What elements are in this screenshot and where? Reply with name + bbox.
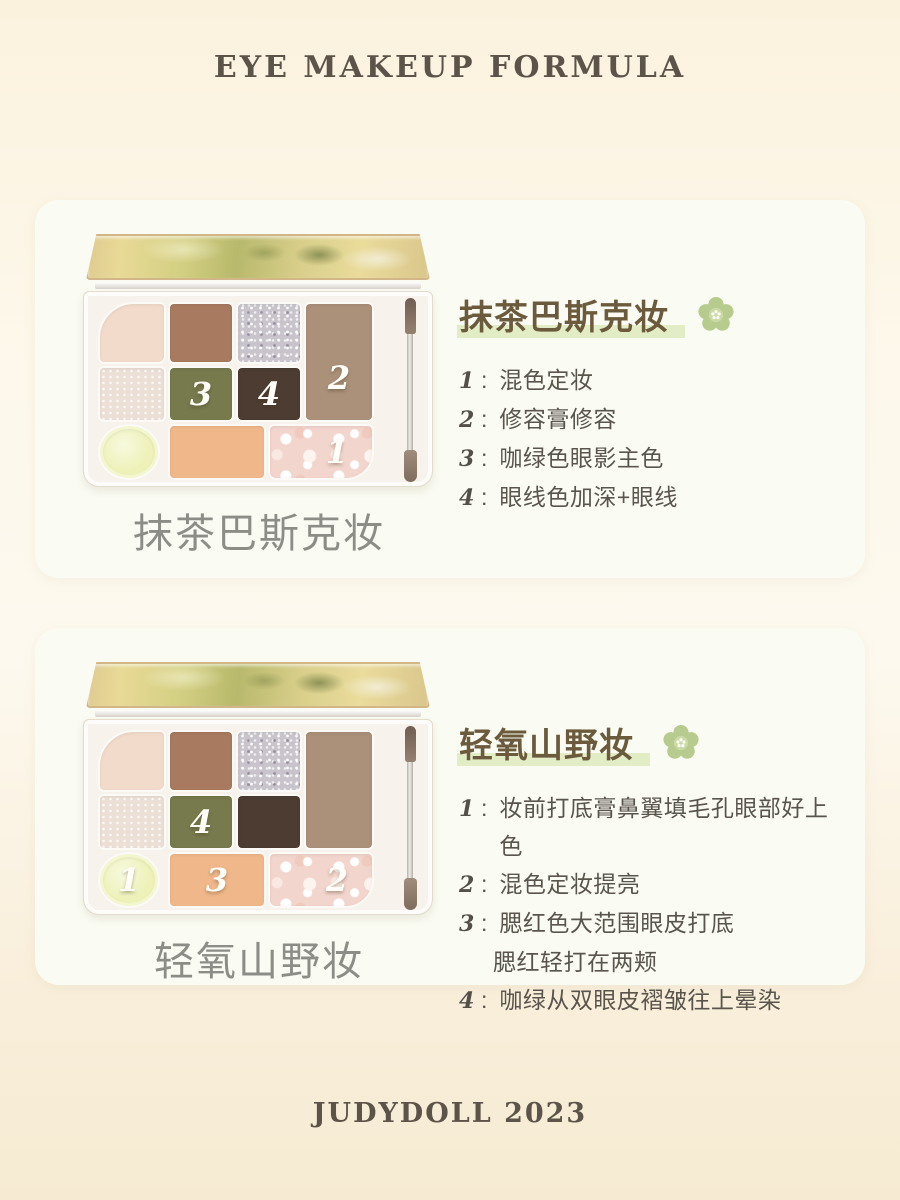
brand-footer: JUDYDOLL 2023 xyxy=(0,1098,900,1129)
pan-pink-marble: 2 xyxy=(270,854,372,906)
dual-ended-brush xyxy=(402,726,418,910)
step-colon: : xyxy=(481,904,487,942)
step-colon: : xyxy=(481,439,487,477)
card-heading-row: 轻氧山野妆 xyxy=(459,718,841,767)
pan-champagne-shimmer xyxy=(100,368,164,420)
brush-handle xyxy=(407,762,413,878)
palette-body: 4 1 3 2 xyxy=(83,719,433,915)
pan-number: 3 xyxy=(206,864,228,896)
step-colon: : xyxy=(481,865,487,903)
palette-caption: 抹茶巴斯克妆 xyxy=(83,501,435,559)
palette-hinge xyxy=(95,710,421,717)
step-number: 4 xyxy=(459,982,481,1020)
pan-taupe-contour xyxy=(306,732,372,848)
step-item: 2:混色定妆提亮 xyxy=(459,865,841,904)
pan-dark-brown-liner: 4 xyxy=(238,368,300,420)
palette-caption: 轻氧山野妆 xyxy=(83,929,435,987)
pan-number: 4 xyxy=(190,806,212,838)
step-text: 混色定妆提亮 xyxy=(499,865,640,903)
step-item: 1:妆前打底膏鼻翼填毛孔眼部好上色 xyxy=(459,789,841,865)
brush-bristle-tip xyxy=(405,298,416,334)
step-item: 3:咖绿色眼影主色 xyxy=(459,439,841,478)
pan-number: 2 xyxy=(326,864,348,896)
step-text: 眼线色加深+眼线 xyxy=(499,478,677,516)
card-heading: 抹茶巴斯克妆 xyxy=(459,299,669,337)
eyeshadow-palette-photo: 4 1 3 2 xyxy=(83,662,433,915)
eyeshadow-palette-photo: 2 3 4 1 xyxy=(83,234,433,487)
pan-number: 4 xyxy=(258,378,280,410)
palette-lid-artwork xyxy=(86,234,430,280)
step-number: 3 xyxy=(459,440,481,478)
pan-light-pink xyxy=(100,732,164,790)
page-title: EYE MAKEUP FORMULA xyxy=(0,0,900,85)
brush-sponge-tip xyxy=(404,878,417,910)
pan-number: 1 xyxy=(118,864,140,896)
pan-silver-glitter xyxy=(238,732,300,790)
brush-sponge-tip xyxy=(404,450,417,482)
pan-warm-brown xyxy=(170,304,232,362)
pan-dark-brown-liner xyxy=(238,796,300,848)
step-text: 混色定妆 xyxy=(499,361,593,399)
step-text: 咖绿色眼影主色 xyxy=(499,439,664,477)
pan-taupe-contour: 2 xyxy=(306,304,372,420)
step-text-continued: 腮红轻打在两颊 xyxy=(493,943,841,981)
palette-hinge xyxy=(95,282,421,289)
step-colon: : xyxy=(481,981,487,1019)
step-text: 妆前打底膏鼻翼填毛孔眼部好上色 xyxy=(499,789,841,865)
makeup-card-mountain: 4 1 3 2 轻氧山野妆 轻氧山野妆 xyxy=(35,628,865,985)
pan-warm-brown xyxy=(170,732,232,790)
formula-column: 抹茶巴斯克妆 1:混色定妆 2:修容膏修容 xyxy=(435,234,841,559)
step-number: 1 xyxy=(459,362,481,400)
makeup-card-matcha: 2 3 4 1 抹茶巴斯克妆 xyxy=(35,200,865,578)
step-text: 修容膏修容 xyxy=(499,400,617,438)
palette-column: 4 1 3 2 轻氧山野妆 xyxy=(83,662,435,1020)
pan-champagne-shimmer xyxy=(100,796,164,848)
pan-silver-glitter xyxy=(238,304,300,362)
step-number: 4 xyxy=(459,479,481,517)
formula-steps: 1:混色定妆 2:修容膏修容 3:咖绿色眼影主色 4:眼线色加深+眼线 xyxy=(459,361,841,517)
card-heading-row: 抹茶巴斯克妆 xyxy=(459,290,841,339)
step-number: 2 xyxy=(459,401,481,439)
step-text: 腮红色大范围眼皮打底 xyxy=(499,904,734,942)
dual-ended-brush xyxy=(402,298,418,482)
pan-pink-marble: 1 xyxy=(270,426,372,478)
palette-body: 2 3 4 1 xyxy=(83,291,433,487)
brush-handle xyxy=(407,334,413,450)
palette-lid-artwork xyxy=(86,662,430,708)
formula-column: 轻氧山野妆 1:妆前打底膏鼻翼填毛孔眼部好上色 2:混色定妆提 xyxy=(435,662,841,1020)
pan-peach-blush: 3 xyxy=(170,854,264,906)
step-number: 2 xyxy=(459,866,481,904)
step-item: 2:修容膏修容 xyxy=(459,400,841,439)
formula-steps: 1:妆前打底膏鼻翼填毛孔眼部好上色 2:混色定妆提亮 3:腮红色大范围眼皮打底 … xyxy=(459,789,841,1020)
step-colon: : xyxy=(481,478,487,516)
step-text: 咖绿从双眼皮褶皱往上晕染 xyxy=(499,981,781,1019)
pan-number: 3 xyxy=(190,378,212,410)
brush-bristle-tip xyxy=(405,726,416,762)
step-item: 4:眼线色加深+眼线 xyxy=(459,478,841,517)
pan-peach-blush xyxy=(170,426,264,478)
pan-light-pink xyxy=(100,304,164,362)
step-colon: : xyxy=(481,400,487,438)
flower-icon xyxy=(662,724,700,762)
pan-olive-green: 3 xyxy=(170,368,232,420)
pan-number: 2 xyxy=(328,362,350,394)
step-number: 3 xyxy=(459,905,481,943)
flower-icon xyxy=(697,296,735,334)
pan-cream-primer xyxy=(100,426,158,478)
step-item: 1:混色定妆 xyxy=(459,361,841,400)
palette-column: 2 3 4 1 抹茶巴斯克妆 xyxy=(83,234,435,559)
pan-olive-green: 4 xyxy=(170,796,232,848)
step-number: 1 xyxy=(459,790,481,828)
step-item: 4:咖绿从双眼皮褶皱往上晕染 xyxy=(459,981,841,1020)
card-heading: 轻氧山野妆 xyxy=(459,727,634,765)
step-item: 3:腮红色大范围眼皮打底 xyxy=(459,904,841,943)
pan-number: 1 xyxy=(326,436,348,468)
step-colon: : xyxy=(481,361,487,399)
pan-cream-primer: 1 xyxy=(100,854,158,906)
step-colon: : xyxy=(481,789,487,827)
